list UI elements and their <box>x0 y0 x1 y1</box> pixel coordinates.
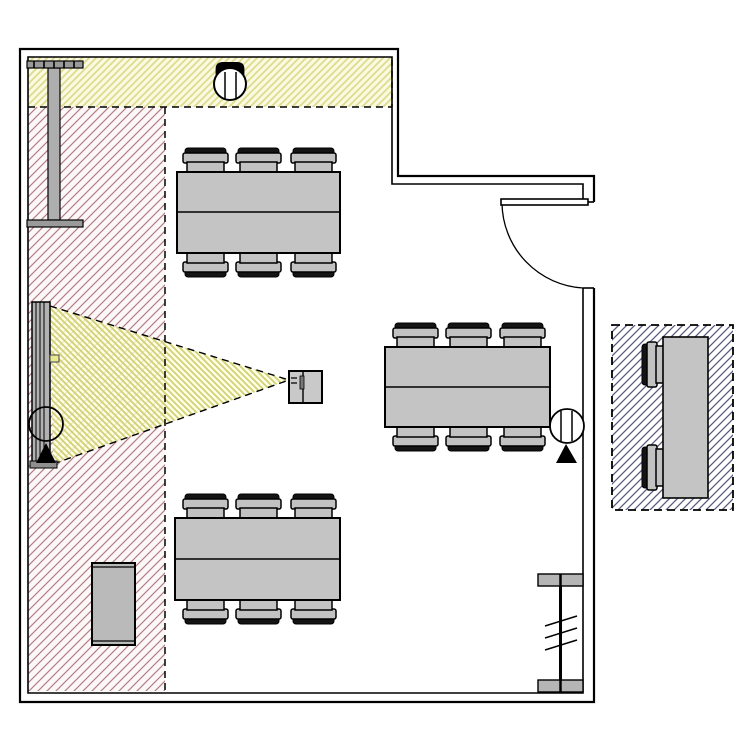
chair <box>236 494 281 518</box>
chair <box>236 253 281 277</box>
screen-body <box>32 302 50 467</box>
window-tick-marks <box>545 616 577 650</box>
ceiling-device-top <box>214 62 246 100</box>
chair <box>236 148 281 172</box>
floor-plan-drawing <box>0 0 750 750</box>
chair <box>291 253 336 277</box>
outside-area-right <box>612 325 733 510</box>
beam-cap-bottom <box>27 220 83 227</box>
chair <box>291 148 336 172</box>
door-swing-arc <box>502 203 583 288</box>
meeting-table-3 <box>175 494 340 624</box>
projector-lens <box>300 376 304 389</box>
chair <box>446 427 491 451</box>
sensor-circle <box>550 409 584 443</box>
door-with-swing <box>501 199 588 288</box>
projector <box>289 371 322 403</box>
device-circle <box>214 68 246 100</box>
chair <box>446 323 491 347</box>
chair <box>393 427 438 451</box>
beam-post <box>48 68 60 220</box>
meeting-table-2 <box>385 323 550 451</box>
chair <box>236 600 281 624</box>
chair <box>183 600 228 624</box>
outside-table <box>663 337 708 498</box>
screen-bracket <box>50 355 59 362</box>
floor-plan-canvas <box>0 0 750 750</box>
chair <box>291 494 336 518</box>
chair <box>183 253 228 277</box>
cabinet <box>92 563 135 645</box>
sensor-triangle-marker <box>556 444 577 463</box>
sensor-right <box>550 409 584 463</box>
chair <box>500 323 545 347</box>
window-element <box>538 574 583 692</box>
chair <box>500 427 545 451</box>
projection-beam-cone <box>50 306 289 464</box>
projector-body <box>289 371 322 403</box>
chair <box>183 494 228 518</box>
chair <box>291 600 336 624</box>
door-leaf <box>501 199 588 205</box>
meeting-table-1 <box>177 148 340 277</box>
chair <box>393 323 438 347</box>
chair <box>183 148 228 172</box>
